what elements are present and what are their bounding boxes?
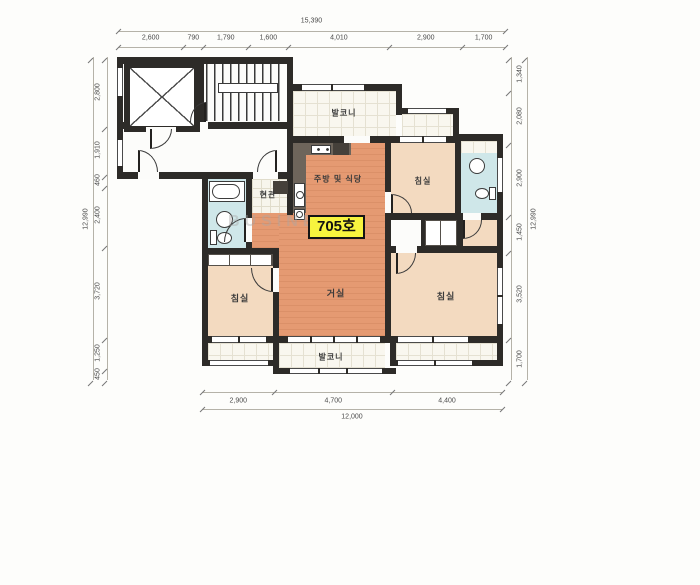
dimension-label: 4,010 xyxy=(330,35,348,42)
dimension-line xyxy=(118,47,505,48)
dimension-label: 12,990 xyxy=(83,208,90,229)
dimension-tick xyxy=(502,29,508,35)
dimension-label: 460 xyxy=(95,174,102,186)
dimension-label: 1,700 xyxy=(517,350,524,368)
dimension-tick xyxy=(522,380,528,386)
dimension-label: 3,520 xyxy=(517,285,524,303)
dimension-label: 4,400 xyxy=(438,398,456,405)
dimension-line xyxy=(202,392,502,393)
dimension-label: 2,080 xyxy=(517,107,524,125)
dimension-tick xyxy=(499,407,505,413)
dimension-tick xyxy=(502,45,508,51)
dimension-label: 12,000 xyxy=(341,414,362,421)
dimension-tick xyxy=(499,390,505,396)
dimension-annotations: 15,3902,6007901,7901,6004,0102,9001,7002… xyxy=(0,0,700,585)
dimension-label: 790 xyxy=(187,35,199,42)
dimension-line xyxy=(118,31,505,32)
dimension-line xyxy=(107,57,108,380)
dimension-line xyxy=(527,57,528,380)
dimension-line xyxy=(511,57,512,380)
dimension-label: 12,990 xyxy=(531,208,538,229)
floorplan-canvas: BUSINESS 발코니 주방 및 식당 현관 침실 거실 침실 침실 발코니 … xyxy=(0,0,700,585)
dimension-label: 1,450 xyxy=(517,223,524,241)
dimension-tick xyxy=(102,380,108,386)
dimension-label: 2,600 xyxy=(142,35,160,42)
dimension-label: 4,700 xyxy=(324,398,342,405)
dimension-tick xyxy=(506,380,512,386)
dimension-label: 1,600 xyxy=(260,35,278,42)
dimension-label: 1,910 xyxy=(95,142,102,160)
dimension-label: 2,900 xyxy=(517,169,524,187)
dimension-label: 1,340 xyxy=(517,65,524,83)
dimension-label: 15,390 xyxy=(301,18,322,25)
dimension-label: 450 xyxy=(95,369,102,381)
dimension-line xyxy=(202,409,502,410)
dimension-label: 2,900 xyxy=(417,35,435,42)
dimension-label: 1,250 xyxy=(95,345,102,363)
dimension-label: 2,900 xyxy=(229,398,247,405)
dimension-line xyxy=(93,57,94,380)
dimension-label: 1,700 xyxy=(475,35,493,42)
dimension-label: 2,800 xyxy=(95,83,102,101)
dimension-tick xyxy=(88,380,94,386)
dimension-label: 2,400 xyxy=(95,207,102,225)
dimension-label: 1,790 xyxy=(217,35,235,42)
dimension-label: 3,720 xyxy=(95,283,102,301)
